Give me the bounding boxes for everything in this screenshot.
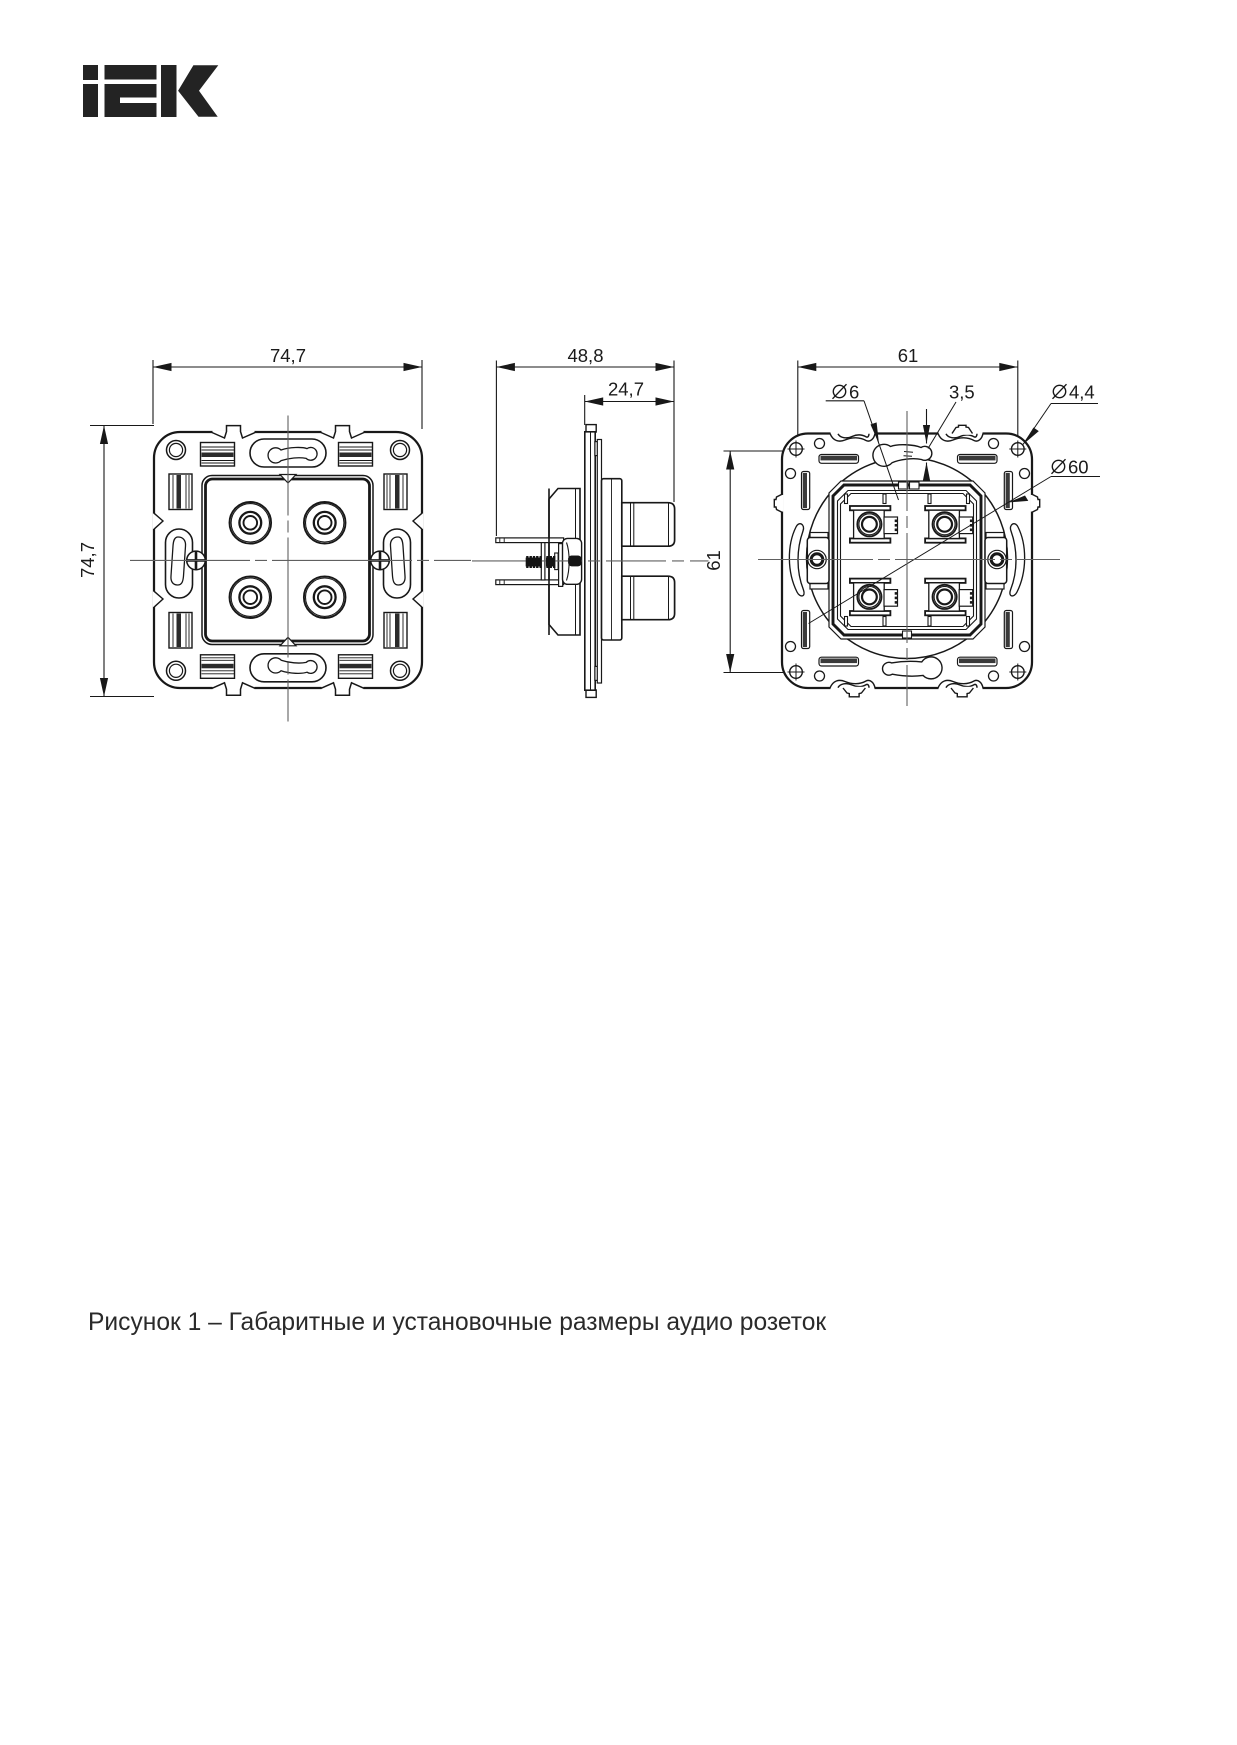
svg-text:6: 6 <box>849 382 859 403</box>
svg-text:Рисунок 1 – Габаритные и уста: Рисунок 1 – Габаритные и установочные ра… <box>88 1309 826 1336</box>
svg-text:60: 60 <box>1068 457 1089 478</box>
svg-text:24,7: 24,7 <box>608 379 644 400</box>
svg-text:61: 61 <box>898 345 919 366</box>
svg-text:3,5: 3,5 <box>949 382 975 403</box>
svg-text:74,7: 74,7 <box>77 542 98 578</box>
svg-text:4,4: 4,4 <box>1069 382 1095 403</box>
svg-text:74,7: 74,7 <box>270 345 306 366</box>
svg-text:48,8: 48,8 <box>567 345 603 366</box>
